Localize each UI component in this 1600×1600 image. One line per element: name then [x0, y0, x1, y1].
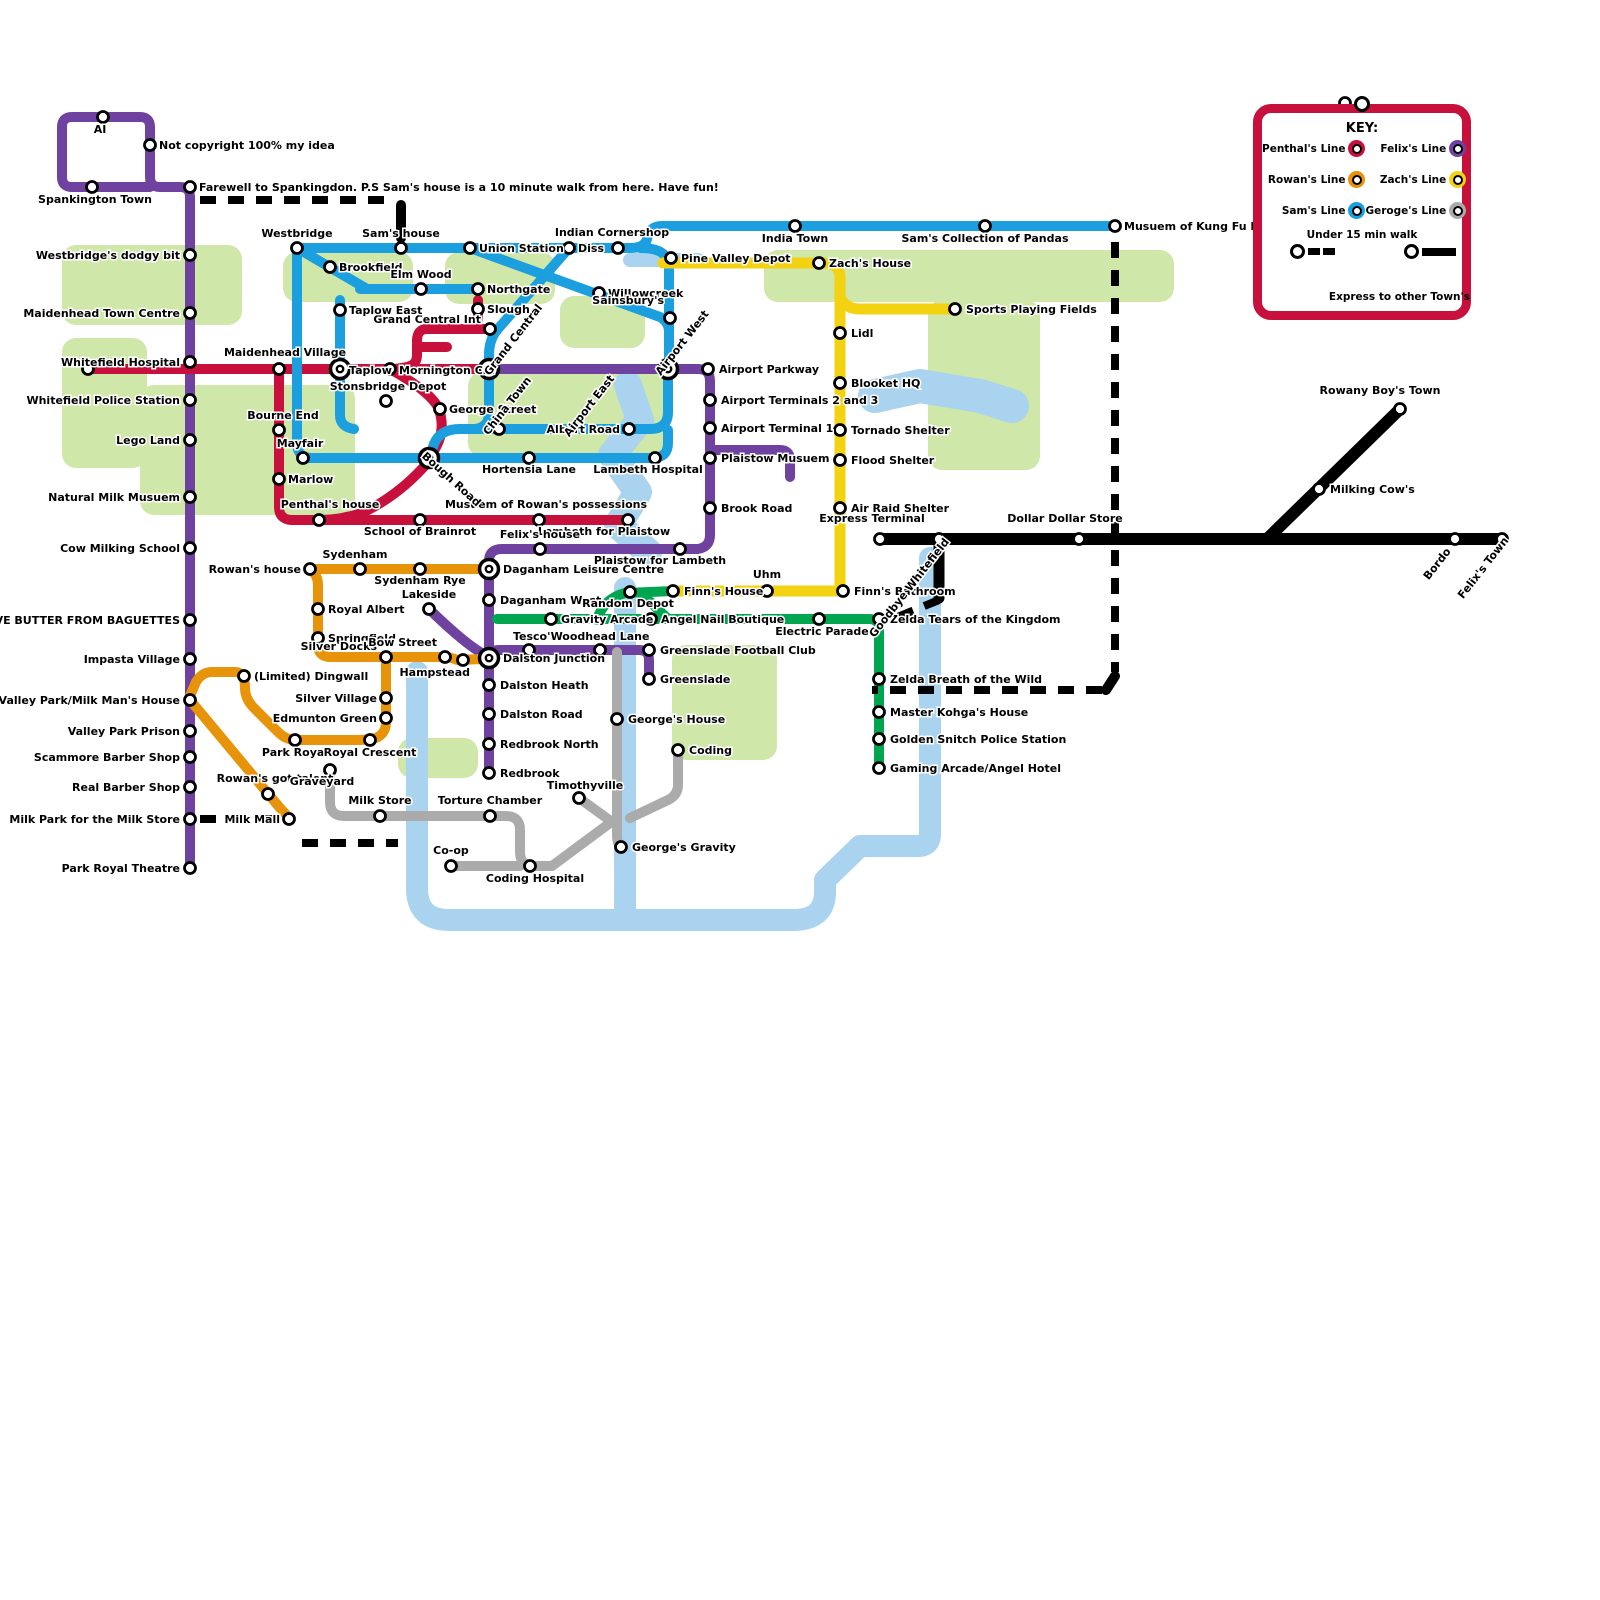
station-marker: [838, 586, 849, 597]
station-label: Airport Parkway: [719, 363, 819, 376]
station-label: Lakeside: [402, 588, 457, 601]
station-marker: [980, 221, 991, 232]
station-label: Coding Hospital: [486, 872, 584, 885]
station-marker: [1314, 484, 1325, 495]
park-area: [672, 645, 777, 760]
station-marker: [484, 739, 495, 750]
line-color-icon: [1348, 202, 1365, 219]
key-walk-label: Under 15 min walk: [1262, 229, 1462, 241]
station-marker: [274, 364, 285, 375]
station-label: Spankington Town: [38, 193, 152, 206]
station-label: Felix's house: [500, 528, 580, 541]
station-marker: [790, 221, 801, 232]
station-label: Park Royal: [262, 746, 328, 759]
station-label: Finn's House: [684, 585, 763, 598]
station-label: REMOVE BUTTER FROM BAGUETTES: [0, 614, 180, 627]
station-label: Sydenham Rye: [374, 574, 465, 587]
station-marker: [616, 842, 627, 853]
station-label: Silver Docks: [301, 640, 378, 653]
station-label: Farewell to Spankingdon. P.S Sam's house…: [199, 181, 719, 194]
station-label: Dalston Junction: [503, 652, 605, 665]
station-marker: [185, 726, 196, 737]
station-label: Elm Wood: [390, 268, 451, 281]
station-marker: [185, 752, 196, 763]
station-marker: [666, 253, 677, 264]
station-marker: [415, 564, 426, 575]
station-marker: [365, 735, 376, 746]
key-entry-label: Zach's Line: [1380, 174, 1446, 186]
station-marker: [185, 182, 196, 193]
station-label: Hampstead: [399, 666, 470, 679]
tube-map-page: AINot copyright 100% my ideaSpankington …: [0, 0, 1600, 1600]
key-station-marker: [1354, 96, 1370, 112]
key-title: KEY:: [1262, 121, 1462, 136]
station-label: Co-op: [433, 844, 469, 857]
station-label: Dollar Dollar Store: [1007, 512, 1122, 525]
station-label: Sydenham: [323, 548, 388, 561]
station-label: Milking Cow's: [1330, 483, 1415, 496]
station-label: Brook Road: [721, 502, 792, 515]
station-marker: [87, 182, 98, 193]
station-label: Park Royal Theatre: [62, 862, 180, 875]
station-label: Electric Parade: [775, 625, 868, 638]
interchange-marker-inner: [337, 366, 343, 372]
station-marker: [484, 595, 495, 606]
station-label: Royal Crescent: [324, 746, 417, 759]
station-label: Lambeth Hospital: [593, 463, 703, 476]
station-label: Valley Park Prison: [68, 725, 180, 738]
station-marker: [612, 714, 623, 725]
station-label: School of Brainrot: [364, 525, 476, 538]
line-geroge: [630, 752, 678, 818]
station-label: Westbridge's dodgy bit: [36, 249, 180, 262]
station-marker: [875, 534, 886, 545]
station-label: Whitefield Police Station: [26, 394, 180, 407]
station-marker: [292, 243, 303, 254]
line-color-icon: [1449, 140, 1466, 157]
station-label: Pine Valley Depot: [681, 252, 791, 265]
station-label: George's House: [628, 713, 725, 726]
station-marker: [424, 604, 435, 615]
station-label: Blooket HQ: [851, 377, 920, 390]
station-label: Taplow East: [349, 304, 422, 317]
station-marker: [313, 604, 324, 615]
station-marker: [814, 614, 825, 625]
station-marker: [465, 243, 476, 254]
key-entry-label: Sam's Line: [1282, 205, 1346, 217]
station-marker: [613, 243, 624, 254]
station-marker: [623, 515, 634, 526]
station-marker: [290, 735, 301, 746]
key-entry: Felix's Line: [1365, 140, 1466, 157]
station-label: Not copyright 100% my idea: [159, 139, 335, 152]
station-label: Bourne End: [247, 409, 319, 422]
station-label: (Limited) Dingwall: [254, 670, 368, 683]
station-marker: [305, 564, 316, 575]
station-marker: [874, 674, 885, 685]
station-marker: [381, 396, 392, 407]
station-label: Lego Land: [116, 434, 180, 447]
station-marker: [381, 693, 392, 704]
station-marker: [705, 423, 716, 434]
station-marker: [355, 564, 366, 575]
key-entry: Sam's Line: [1262, 202, 1365, 219]
walk-sample-icon: [1290, 244, 1335, 259]
key-samples: [1262, 241, 1462, 259]
station-marker: [435, 404, 446, 415]
station-label: Dalston Heath: [500, 679, 589, 692]
station-label: Indian Cornershop: [555, 226, 669, 239]
station-marker: [314, 515, 325, 526]
station-marker: [950, 304, 961, 315]
station-marker: [185, 543, 196, 554]
station-marker: [185, 357, 196, 368]
station-marker: [835, 378, 846, 389]
rotated-station-label: Bordo: [1421, 545, 1454, 582]
station-marker: [705, 395, 716, 406]
station-label: Tornado Shelter: [851, 424, 950, 437]
station-marker: [145, 140, 156, 151]
station-marker: [625, 587, 636, 598]
station-label: Whitefield Hospital: [61, 356, 180, 369]
station-marker: [274, 474, 285, 485]
station-marker: [675, 544, 686, 555]
station-label: Milk Store: [348, 794, 411, 807]
station-label: Northgate: [487, 283, 550, 296]
station-marker: [473, 284, 484, 295]
station-marker: [446, 861, 457, 872]
station-label: Redbrook North: [500, 738, 599, 751]
line-express: [1106, 676, 1115, 690]
station-label: Sam's house: [362, 227, 440, 240]
station-label: Union Station: [479, 242, 564, 255]
station-marker: [415, 515, 426, 526]
station-marker: [185, 250, 196, 261]
station-label: Master Kohga's House: [890, 706, 1028, 719]
station-label: Daganham Leisure Centre: [503, 563, 664, 576]
station-marker: [485, 811, 496, 822]
station-label: Random Depot: [582, 597, 674, 610]
line-color-icon: [1348, 171, 1365, 188]
station-marker: [396, 243, 407, 254]
key-entry: Penthal's Line: [1262, 140, 1365, 157]
station-label: Golden Snitch Police Station: [890, 733, 1066, 746]
key-entry-label: Rowan's Line: [1268, 174, 1346, 186]
station-marker: [673, 745, 684, 756]
station-marker: [98, 112, 109, 123]
station-label: Mayfair: [277, 437, 324, 450]
station-marker: [564, 243, 575, 254]
station-label: Airport Terminals 2 and 3: [721, 394, 878, 407]
station-marker: [546, 614, 557, 625]
station-marker: [263, 789, 274, 800]
key-entry-label: Penthal's Line: [1262, 143, 1345, 155]
station-marker: [298, 453, 309, 464]
station-label: Lidl: [851, 327, 873, 340]
station-label: Diss: [578, 242, 604, 255]
station-label: Bow Street: [368, 636, 437, 649]
station-marker: [874, 707, 885, 718]
station-label: Real Barber Shop: [72, 781, 180, 794]
station-marker: [874, 763, 885, 774]
key-entry: Geroge's Line: [1365, 202, 1466, 219]
interchange-marker-inner: [486, 566, 492, 572]
station-label: Rowan's house: [209, 563, 301, 576]
station-marker: [375, 811, 386, 822]
station-label: India Town: [762, 232, 828, 245]
station-label: Maidenhead Town Centre: [23, 307, 180, 320]
station-marker: [1450, 534, 1461, 545]
station-label: Zelda Breath of the Wild: [890, 673, 1042, 686]
station-marker: [239, 671, 250, 682]
station-marker: [185, 863, 196, 874]
key-entry-label: Felix's Line: [1380, 143, 1446, 155]
station-marker: [835, 328, 846, 339]
station-marker: [874, 734, 885, 745]
station-marker: [185, 395, 196, 406]
express-sample-icon: [1404, 244, 1456, 259]
station-label: Maidenhead Village: [224, 346, 346, 359]
station-label: Plaistow Musuem: [721, 452, 829, 465]
station-label: Milk Park for the Milk Store: [9, 813, 180, 826]
station-marker: [835, 455, 846, 466]
station-label: Edmunton Green: [273, 712, 377, 725]
station-marker: [524, 453, 535, 464]
key-entry: Rowan's Line: [1262, 171, 1365, 188]
station-marker: [624, 424, 635, 435]
line-color-icon: [1449, 171, 1466, 188]
station-marker: [534, 515, 545, 526]
station-label: Greenslade Football Club: [660, 644, 816, 657]
line-express: [1267, 409, 1400, 539]
station-marker: [668, 586, 679, 597]
station-marker: [574, 793, 585, 804]
station-marker: [185, 435, 196, 446]
station-marker: [525, 861, 536, 872]
station-marker: [1110, 221, 1121, 232]
station-marker: [835, 425, 846, 436]
station-label: Graveyard: [290, 775, 354, 788]
station-marker: [644, 674, 655, 685]
station-marker: [335, 305, 346, 316]
station-label: Express Terminal: [819, 512, 924, 525]
key-line-list: Penthal's LineFelix's LineRowan's LineZa…: [1262, 138, 1462, 219]
station-marker: [185, 695, 196, 706]
key-entry-label: Geroge's Line: [1365, 205, 1446, 217]
station-marker: [705, 503, 716, 514]
station-label: Timothyville: [547, 779, 624, 792]
station-marker: [185, 814, 196, 825]
station-label: Airport Terminal 1: [721, 422, 833, 435]
station-label: Hortensia Lane: [482, 463, 576, 476]
line-color-icon: [1449, 202, 1466, 219]
key-express-label: Express to other Town's: [1329, 291, 1470, 303]
station-marker: [325, 262, 336, 273]
station-label: Sports Playing Fields: [966, 303, 1097, 316]
station-marker: [185, 492, 196, 503]
station-label: Royal Albert: [328, 603, 405, 616]
station-label: Rowany Boy's Town: [1320, 384, 1441, 397]
station-marker: [185, 782, 196, 793]
station-label: Greenslade: [660, 673, 730, 686]
station-label: Flood Shelter: [851, 454, 935, 467]
station-marker: [484, 768, 495, 779]
station-marker: [381, 713, 392, 724]
station-marker: [185, 654, 196, 665]
station-label: Sainsbury's: [592, 294, 664, 307]
station-marker: [484, 680, 495, 691]
map-key: KEY: Penthal's LineFelix's LineRowan's L…: [1253, 104, 1471, 320]
station-marker: [665, 313, 676, 324]
station-label: Dalston Road: [500, 708, 583, 721]
station-marker: [284, 814, 295, 825]
station-marker: [1074, 534, 1085, 545]
station-label: Scammore Barber Shop: [34, 751, 180, 764]
station-label: Woodhead Lane: [551, 630, 650, 643]
station-marker: [185, 615, 196, 626]
station-marker: [185, 308, 196, 319]
station-label: Natural Milk Musuem: [48, 491, 180, 504]
station-label: Angel Nail Boutique: [661, 613, 784, 626]
station-label: Westbridge: [261, 227, 332, 240]
station-marker: [416, 284, 427, 295]
station-label: Cow Milking School: [60, 542, 180, 555]
station-marker: [484, 709, 495, 720]
station-marker: [381, 652, 392, 663]
station-label: Taplow: [349, 364, 392, 377]
station-marker: [650, 453, 661, 464]
station-marker: [644, 645, 655, 656]
station-label: Valley Park/Milk Man's House: [0, 694, 180, 707]
line-color-icon: [1348, 140, 1365, 157]
key-entry: Zach's Line: [1365, 171, 1466, 188]
station-label: Gravity Arcade: [561, 613, 653, 626]
station-label: Sam's Collection of Pandas: [902, 232, 1069, 245]
station-marker: [705, 453, 716, 464]
station-label: Marlow: [288, 473, 333, 486]
station-label: Gaming Arcade/Angel Hotel: [890, 762, 1061, 775]
station-marker: [440, 652, 451, 663]
station-label: AI: [94, 123, 107, 136]
station-marker: [703, 364, 714, 375]
station-label: Torture Chamber: [438, 794, 543, 807]
station-marker: [814, 258, 825, 269]
station-label: Stonsbridge Depot: [330, 380, 447, 393]
station-marker: [535, 544, 546, 555]
station-label: Zach's House: [829, 257, 911, 270]
station-label: Coding: [689, 744, 732, 757]
station-marker: [458, 655, 469, 666]
station-label: Zelda Tears of the Kingdom: [890, 613, 1061, 626]
line-geroge: [552, 820, 614, 866]
station-marker: [1395, 404, 1406, 415]
station-label: Albert Road: [547, 423, 620, 436]
station-label: Impasta Village: [84, 653, 180, 666]
station-label: Penthal's house: [281, 498, 380, 511]
station-marker: [274, 425, 285, 436]
station-label: George's Gravity: [632, 841, 736, 854]
station-label: Uhm: [753, 568, 781, 581]
station-label: Slough: [487, 303, 530, 316]
station-label: Milk Mall: [224, 813, 280, 826]
station-label: Mornington Crc: [399, 364, 495, 377]
station-marker: [485, 324, 496, 335]
interchange-marker-inner: [486, 655, 492, 661]
station-label: Silver Village: [295, 692, 377, 705]
